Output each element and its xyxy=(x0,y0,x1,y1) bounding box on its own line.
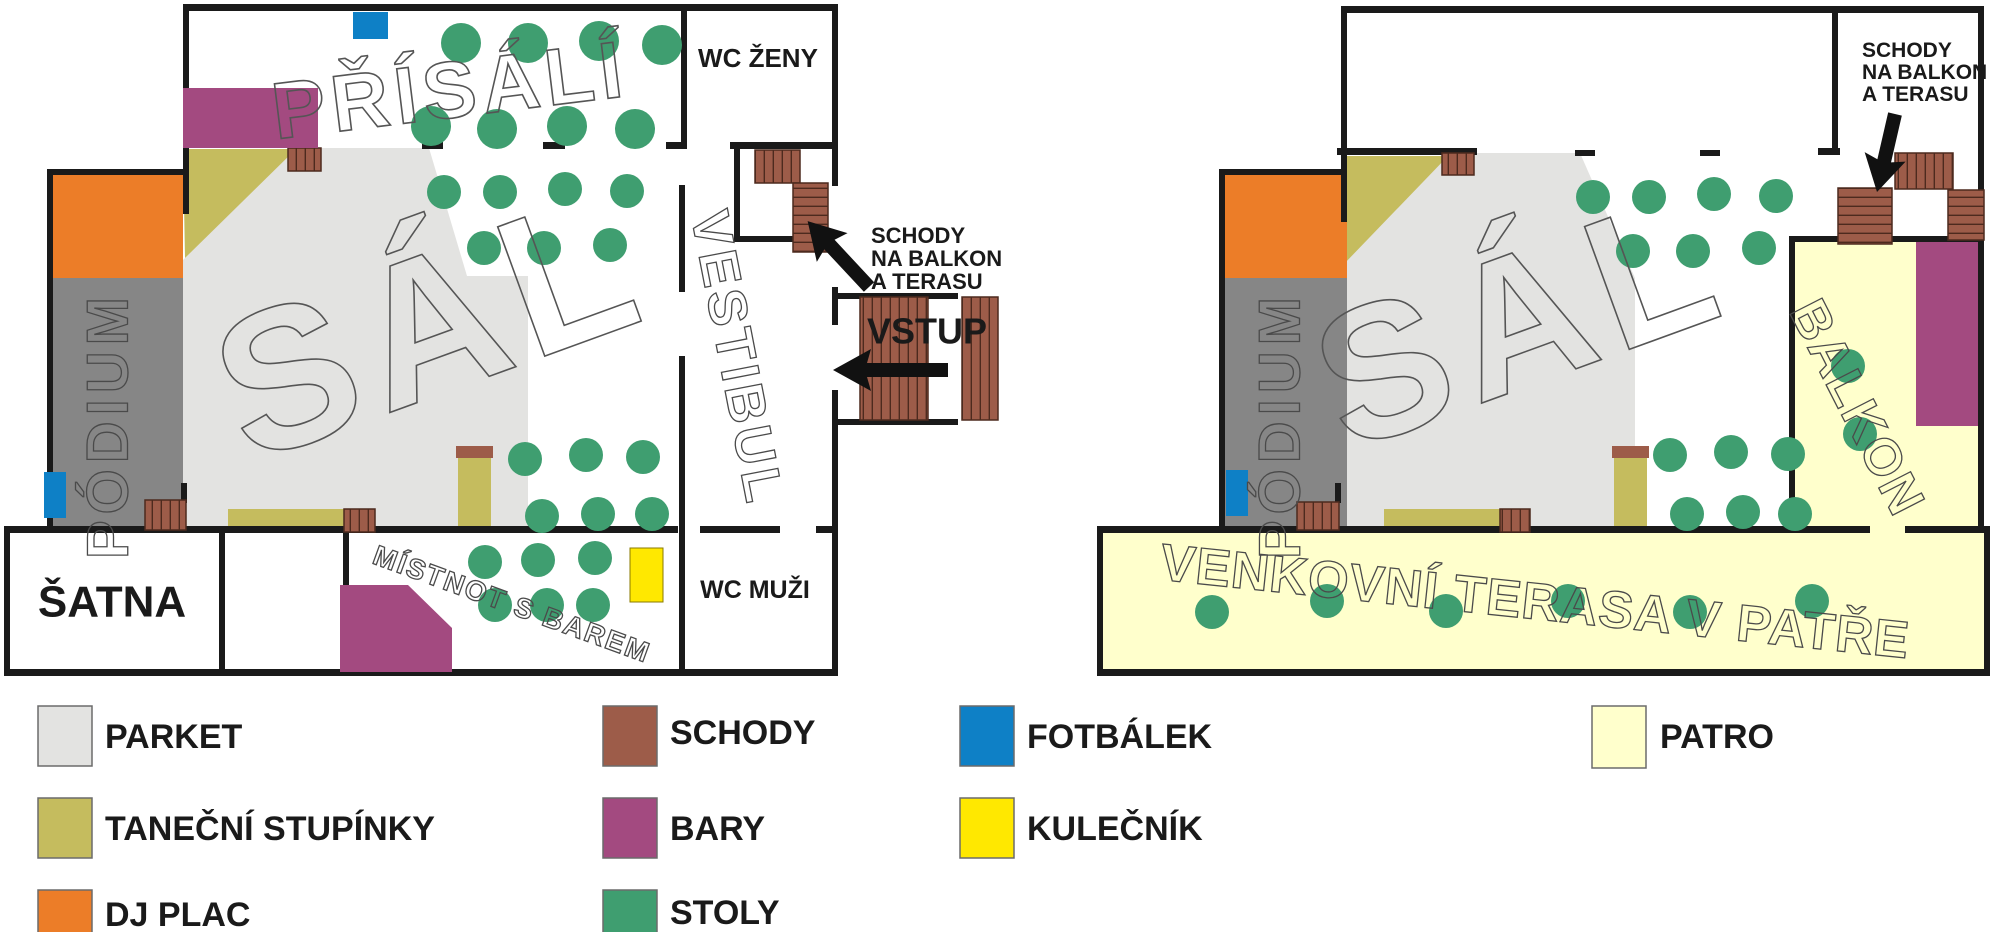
legend-item-fotbalek: FOTBÁLEK xyxy=(960,706,1213,766)
legend-swatch-kulecnik xyxy=(960,798,1014,858)
foosball-podium xyxy=(44,472,66,518)
legend-item-patro: PATRO xyxy=(1592,706,1774,768)
label-satna: ŠATNA xyxy=(38,576,186,627)
dj-plac-area xyxy=(47,172,183,278)
note-stairs-ground-line3: A TERASU xyxy=(871,269,983,294)
legend-item-kulecnik: KULEČNÍK xyxy=(960,798,1203,858)
legend-label-stoly: STOLY xyxy=(670,894,780,932)
legend-item-schody: SCHODY xyxy=(603,706,816,766)
label-vstup: VSTUP xyxy=(867,311,987,352)
legend-item-bary: BARY xyxy=(603,798,765,858)
legend-label-patro: PATRO xyxy=(1660,718,1774,756)
label-vestibul: VESTIBUL xyxy=(679,206,795,511)
dance-steps-tall-cap xyxy=(456,446,493,458)
note-stairs-upper-line2: NA BALKON xyxy=(1862,61,1987,84)
legend-label-schody: SCHODY xyxy=(670,714,816,752)
legend-swatch-tanecni xyxy=(38,798,92,858)
legend-swatch-parket xyxy=(38,706,92,766)
legend-label-tanecni: TANEČNÍ STUPÍNKY xyxy=(105,809,435,848)
foosball-podium-upper xyxy=(1226,470,1248,516)
legend-swatch-stoly xyxy=(603,890,657,932)
legend-item-stoly: STOLY xyxy=(603,890,780,932)
dance-steps-tall-upper xyxy=(1614,458,1647,530)
upper-floor-plan: SÁL PÓDIUM BALKON VENKOVNÍ TERASA V PATŘ… xyxy=(1097,6,1990,676)
label-podium-ground: PÓDIUM xyxy=(76,291,141,559)
dance-steps-tall xyxy=(458,456,491,530)
note-stairs-upper: SCHODY NA BALKON A TERASU xyxy=(1862,39,1987,106)
legend-label-kulecnik: KULEČNÍK xyxy=(1027,809,1203,848)
dance-steps-tall-cap-upper xyxy=(1612,446,1649,458)
legend-swatch-patro xyxy=(1592,706,1646,768)
legend-swatch-bary xyxy=(603,798,657,858)
stairs-podium xyxy=(145,500,186,530)
stairs-balcony-a xyxy=(755,150,800,183)
legend-item-tanecni: TANEČNÍ STUPÍNKY xyxy=(38,798,435,858)
label-wc-muzi: WC MUŽI xyxy=(700,574,810,604)
tables-sal-lower-upper-floor xyxy=(1653,435,1812,531)
stairs-upper-top xyxy=(1895,153,1953,189)
legend-label-parket: PARKET xyxy=(105,718,242,756)
ground-floor-plan: PŘÍSÁLÍ SÁL PÓDIUM VESTIBUL MÍSTNOT S BA… xyxy=(4,4,1002,676)
label-wc-zeny: WC ŽENY xyxy=(698,43,818,73)
stairs-dance-strip-upper xyxy=(1500,509,1530,532)
stairs-upper-left xyxy=(1838,188,1892,244)
legend-label-bary: BARY xyxy=(670,810,765,848)
note-stairs-ground: SCHODY NA BALKON A TERASU xyxy=(871,223,1002,294)
note-stairs-upper-line1: SCHODY xyxy=(1862,39,1952,62)
stairs-upper-right xyxy=(1948,190,1984,240)
label-podium-upper: PÓDIUM xyxy=(1248,291,1313,559)
legend-item-parket: PARKET xyxy=(38,706,242,766)
legend-label-fotbalek: FOTBÁLEK xyxy=(1027,718,1213,756)
legend-item-dj: DJ PLAC xyxy=(38,890,250,932)
tables-sal-lower xyxy=(508,438,669,533)
bar-balcony xyxy=(1916,242,1984,426)
note-stairs-upper-line3: A TERASU xyxy=(1862,83,1969,106)
legend-swatch-schody xyxy=(603,706,657,766)
legend-swatch-fotbalek xyxy=(960,706,1014,766)
note-stairs-ground-line2: NA BALKON xyxy=(871,246,1002,271)
stairs-dance-strip xyxy=(344,509,375,532)
bar-room-counter xyxy=(340,585,452,672)
floor-plan-drawing: PŘÍSÁLÍ SÁL PÓDIUM VESTIBUL MÍSTNOT S BA… xyxy=(0,0,2000,932)
note-stairs-ground-line1: SCHODY xyxy=(871,223,965,248)
stairs-wedge-upper xyxy=(1442,153,1474,175)
billiard-table xyxy=(630,548,663,602)
legend-swatch-dj xyxy=(38,890,92,932)
foosball-prisali xyxy=(353,12,388,39)
legend: PARKET TANEČNÍ STUPÍNKY DJ PLAC SCHODY B… xyxy=(38,706,1774,932)
legend-label-dj: DJ PLAC xyxy=(105,896,250,932)
dj-plac-area-upper xyxy=(1219,172,1347,278)
floor-plan-page: PŘÍSÁLÍ SÁL PÓDIUM VESTIBUL MÍSTNOT S BA… xyxy=(0,0,2000,932)
